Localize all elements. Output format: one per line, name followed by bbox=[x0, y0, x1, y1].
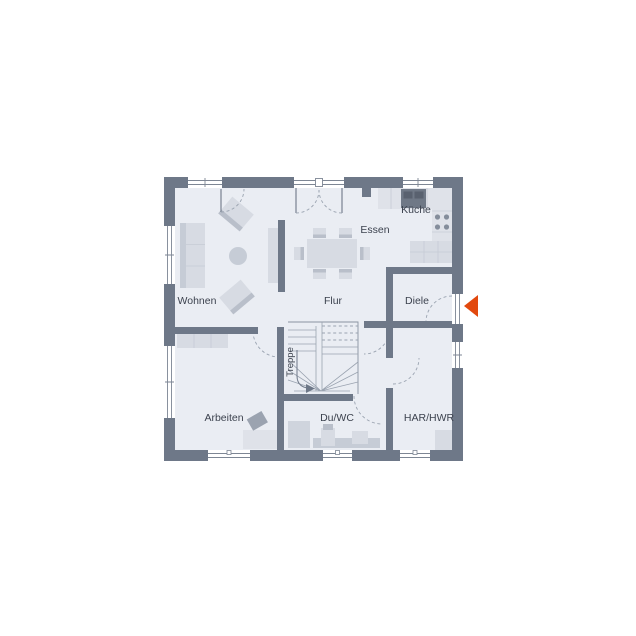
wall-diele-left bbox=[386, 267, 393, 358]
shower bbox=[288, 421, 310, 448]
room-label-harhwr: HAR/HWR bbox=[404, 412, 455, 424]
floor-plan-drawing: Wohnen Essen Küche Flur Diele Treppe Arb… bbox=[0, 0, 636, 636]
room-label-flur: Flur bbox=[324, 295, 343, 307]
exterior-wall-left bbox=[164, 177, 175, 461]
dining-table bbox=[307, 239, 357, 268]
wall-living-office bbox=[170, 327, 258, 334]
kitchen-counter-right bbox=[432, 188, 452, 241]
terrace-door-handle bbox=[316, 179, 323, 187]
sideboard bbox=[268, 228, 278, 283]
wall-office-stairs bbox=[277, 327, 284, 450]
wall-diele-bottom bbox=[364, 321, 452, 328]
room-label-arbeiten: Arbeiten bbox=[204, 412, 243, 424]
toilet bbox=[321, 428, 335, 446]
room-label-duwc: Du/WC bbox=[320, 412, 354, 424]
desk bbox=[243, 430, 278, 449]
washbasin bbox=[352, 431, 368, 444]
floor-plan-canvas: Wohnen Essen Küche Flur Diele Treppe Arb… bbox=[0, 0, 636, 636]
wall-utility-left bbox=[386, 388, 393, 450]
utility-fixtures bbox=[435, 430, 452, 450]
partition-living-hall bbox=[278, 220, 285, 292]
room-label-essen: Essen bbox=[360, 224, 389, 236]
sofa-backrest bbox=[180, 223, 186, 288]
wall-stub-top bbox=[362, 188, 371, 197]
entrance-arrow-icon bbox=[464, 295, 478, 317]
coffee-table bbox=[229, 247, 247, 265]
room-label-treppe: Treppe bbox=[285, 347, 296, 377]
wall-stairs-bath bbox=[277, 394, 353, 401]
room-label-kueche: Küche bbox=[401, 204, 431, 216]
room-label-wohnen: Wohnen bbox=[178, 295, 217, 307]
wall-kitchen-diele bbox=[386, 267, 452, 274]
washing-machine bbox=[435, 430, 452, 450]
entrance-door-opening bbox=[452, 294, 463, 324]
room-label-diele: Diele bbox=[405, 295, 429, 307]
